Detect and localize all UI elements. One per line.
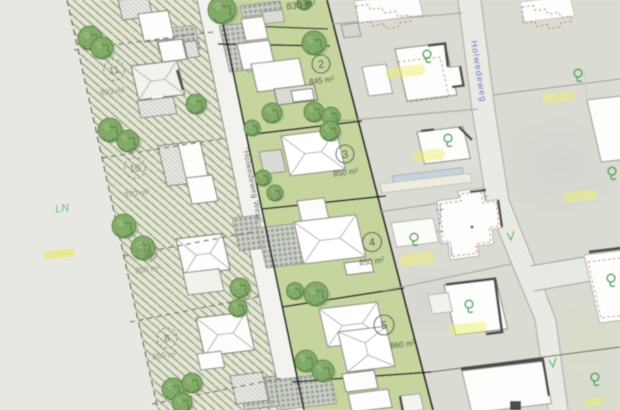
svg-text:10: 10 [129,163,142,175]
svg-text:LN: LN [55,202,71,216]
svg-text:11: 11 [108,65,120,77]
